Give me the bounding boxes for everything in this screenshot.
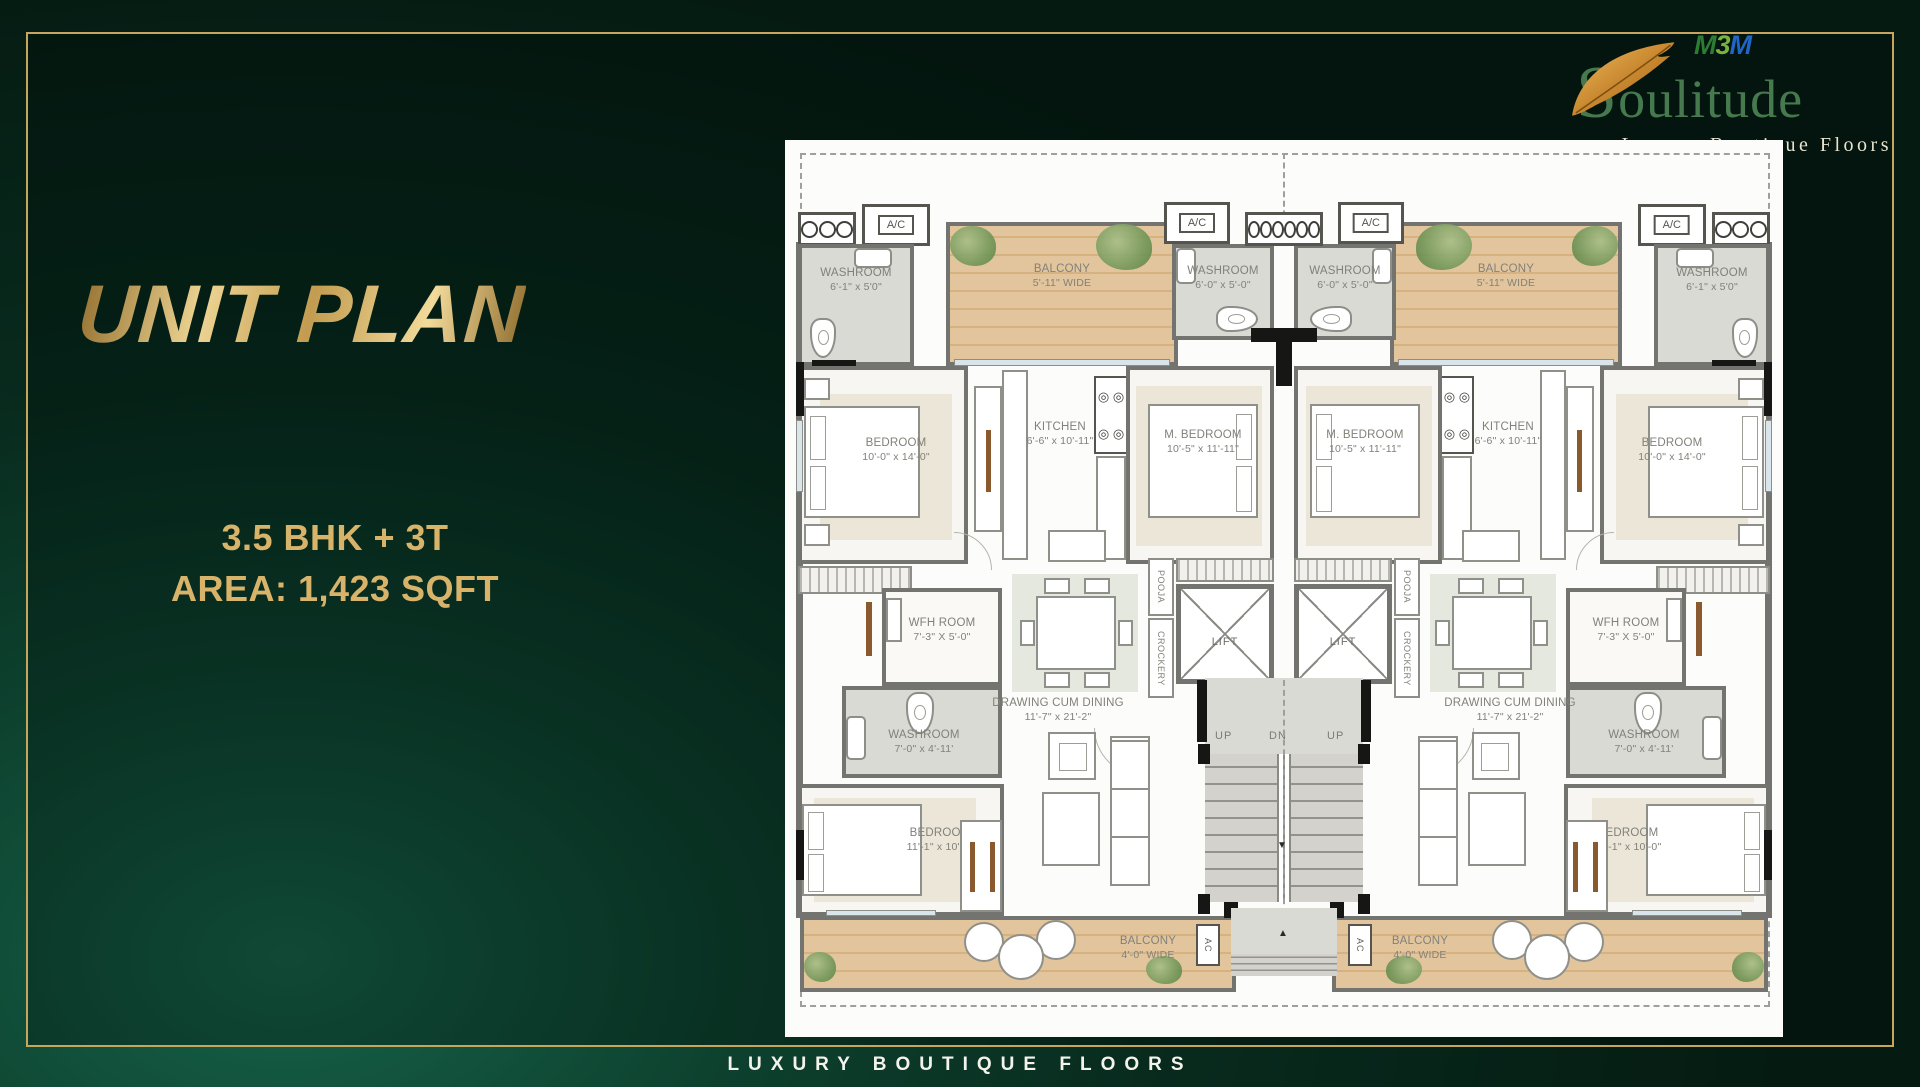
ac-unit-small: AC	[1348, 924, 1372, 966]
pillow	[808, 812, 824, 850]
washroom-corner-label: WASHROOM6'-1" x 5'0"	[1658, 266, 1766, 294]
wardrobe	[960, 820, 1002, 912]
burner: ◎	[1444, 389, 1455, 405]
pillow	[1236, 466, 1252, 512]
room-name: M. BEDROOM	[1142, 428, 1264, 443]
pipe-circle	[1308, 221, 1320, 238]
balcony-top-label: BALCONY5'-11" WIDE	[1430, 262, 1582, 290]
room-dims: 4'-0" WIDE	[1358, 949, 1482, 962]
kitchen-counter	[1540, 370, 1566, 560]
kitchen-label: KITCHEN6'-6" x 10'-11"	[1450, 420, 1566, 448]
balcony-table	[998, 934, 1044, 980]
balcony-chair	[1564, 922, 1604, 962]
armchair	[1472, 732, 1520, 780]
room-dims: 10'-0" x 14'-0"	[1612, 451, 1732, 464]
pillow	[1744, 812, 1760, 850]
room-dims: 5'-11" WIDE	[1430, 277, 1582, 290]
pipe-circle	[836, 221, 853, 238]
dining-chair	[1435, 620, 1450, 646]
cushion	[1481, 743, 1509, 771]
lift-shaft: LIFT	[1294, 584, 1392, 684]
dining-chair	[1458, 578, 1484, 594]
crockery-label: CROCKERY	[1394, 618, 1420, 698]
cushion	[1059, 743, 1087, 771]
room-name: KITCHEN	[1002, 420, 1118, 435]
wardrobe-handle	[1593, 842, 1598, 892]
unit-config: 3.5 BHK + 3T	[80, 512, 590, 563]
pillow	[810, 466, 826, 510]
side-table	[1738, 524, 1764, 546]
ac-label: A/C	[1179, 213, 1215, 233]
coffee-table	[1042, 792, 1100, 866]
room-dims: 5'-11" WIDE	[986, 277, 1138, 290]
room-name: BALCONY	[1358, 934, 1482, 949]
stair-flight	[1291, 754, 1363, 902]
room-name: WASHROOM	[1174, 264, 1272, 279]
unit-summary: 3.5 BHK + 3T AREA: 1,423 SQFT	[80, 512, 590, 614]
party-wall	[1276, 340, 1292, 386]
page-title: UNIT PLAN	[75, 268, 528, 362]
ac-unit: A/C	[1338, 202, 1404, 244]
window	[796, 420, 803, 492]
plant	[950, 226, 996, 266]
sink	[854, 248, 892, 268]
wardrobe-handle	[990, 842, 995, 892]
room-dims: 10'-5" x 11'-11"	[1304, 443, 1426, 456]
room-dims: 10'-5" x 11'-11"	[1142, 443, 1264, 456]
wardrobe	[1566, 386, 1594, 532]
burner: ◎	[1113, 389, 1124, 405]
room-dims: 6'-6" x 10'-11"	[1002, 435, 1118, 448]
wfh-room-label: WFH ROOM7'-3" X 5'-0"	[888, 616, 996, 644]
ac-label: AC	[1203, 938, 1213, 953]
wardrobe-handle	[1577, 430, 1582, 492]
m-bedroom-label: M. BEDROOM10'-5" x 11'-11"	[1142, 428, 1264, 456]
service-shaft	[1712, 212, 1770, 246]
ac-label: A/C	[878, 215, 914, 235]
pooja-label: POOJA	[1394, 558, 1420, 616]
room-name: BALCONY	[1086, 934, 1210, 949]
unit-area: AREA: 1,423 SQFT	[80, 563, 590, 614]
stairs-up-label: UP	[1215, 730, 1232, 742]
wfh-room-label: WFH ROOM7'-3" X 5'-0"	[1572, 616, 1680, 644]
dining-chair	[1020, 620, 1035, 646]
side-table	[1738, 378, 1764, 400]
burner: ◎	[1098, 389, 1109, 405]
side-table	[804, 524, 830, 546]
room-name: DRAWING CUM DINING	[988, 696, 1128, 711]
armchair	[1048, 732, 1096, 780]
bed	[1310, 404, 1420, 518]
dining-chair	[1084, 578, 1110, 594]
stair-wall	[1361, 680, 1371, 742]
wardrobe-handle	[1573, 842, 1578, 892]
bed	[1148, 404, 1258, 518]
room-dims: 6'-0" x 5'-0"	[1296, 279, 1394, 292]
drawing-dining-label: DRAWING CUM DINING11'-7" x 21'-2"	[1440, 696, 1580, 724]
room-name: WASHROOM	[1296, 264, 1394, 279]
window	[1765, 420, 1772, 492]
room-dims: 7'-3" X 5'-0"	[888, 631, 996, 644]
wall-column	[796, 830, 804, 880]
dining-chair	[1044, 578, 1070, 594]
room-name: BALCONY	[1430, 262, 1582, 277]
pipe-circle	[1284, 221, 1296, 238]
pipe-circle	[801, 221, 818, 238]
dining-chair	[1044, 672, 1070, 688]
room-name: DRAWING CUM DINING	[1440, 696, 1580, 711]
dining-chair	[1533, 620, 1548, 646]
m3m-mark: M3M	[1694, 30, 1751, 61]
room-name: M. BEDROOM	[1304, 428, 1426, 443]
pipe-circle	[1272, 221, 1284, 238]
room-dims: 6'-0" x 5'-0"	[1174, 279, 1272, 292]
room-name: WFH ROOM	[888, 616, 996, 631]
ac-unit: A/C	[1164, 202, 1230, 244]
m3m-letter: M	[1694, 30, 1716, 60]
up-arrow-icon: ▲	[1278, 928, 1288, 939]
ac-label: A/C	[1654, 215, 1690, 235]
pipe-circle	[1296, 221, 1308, 238]
dining-chair	[1084, 672, 1110, 688]
m-bedroom-label: M. BEDROOM10'-5" x 11'-11"	[1304, 428, 1426, 456]
service-shaft	[798, 212, 856, 246]
washroom-mid-label: WASHROOM7'-0" x 4'-11'	[1572, 728, 1716, 756]
down-arrow-icon: ▼	[1277, 840, 1287, 851]
drawing-dining-label: DRAWING CUM DINING11'-7" x 21'-2"	[988, 696, 1128, 724]
balcony-top-label: BALCONY5'-11" WIDE	[986, 262, 1138, 290]
pillow	[1744, 854, 1760, 892]
wardrobe-hatch	[1294, 558, 1392, 582]
pillow	[1742, 466, 1758, 510]
newel-post	[1358, 894, 1370, 914]
center-line-dashed	[1283, 680, 1285, 914]
wall-column	[1764, 362, 1772, 416]
sofa	[1418, 736, 1458, 886]
ac-label: A/C	[1353, 213, 1389, 233]
door-leaf	[1696, 602, 1702, 656]
ac-unit: A/C	[1638, 204, 1706, 246]
m3m-digit: 3	[1716, 30, 1730, 60]
room-name: WASHROOM	[852, 728, 996, 743]
bedroom-top-label: BEDROOM10'-0" x 14'-0"	[1612, 436, 1732, 464]
coffee-table	[1468, 792, 1526, 866]
pipe-circle	[1733, 221, 1750, 238]
newel-post	[1358, 744, 1370, 764]
pipe-circle	[1715, 221, 1732, 238]
ac-unit-small: AC	[1196, 924, 1220, 966]
wall-column	[796, 362, 804, 416]
ac-label: AC	[1355, 938, 1365, 953]
room-dims: 11'-7" x 21'-2"	[1440, 711, 1580, 724]
bedroom-top-label: BEDROOM10'-0" x 14'-0"	[836, 436, 956, 464]
plant	[804, 952, 836, 982]
lift-label: LIFT	[1299, 636, 1387, 648]
wall-column	[1764, 830, 1772, 880]
door-leaf	[866, 602, 872, 656]
room-name: WASHROOM	[1572, 728, 1716, 743]
room-dims: 7'-0" x 4'-11'	[852, 743, 996, 756]
pillow	[808, 854, 824, 892]
kitchen-island	[1048, 530, 1106, 562]
room-dims: 6'-1" x 5'0"	[802, 281, 910, 294]
room-name: WASHROOM	[802, 266, 910, 281]
lift-label: LIFT	[1181, 636, 1269, 648]
room-dims: 6'-1" x 5'0"	[1658, 281, 1766, 294]
room-dims: 7'-0" x 4'-11'	[1572, 743, 1716, 756]
sink	[1676, 248, 1714, 268]
service-shaft-center	[1245, 212, 1323, 246]
pillow	[810, 416, 826, 460]
room-name: BEDROOM	[1612, 436, 1732, 451]
newel-post	[1198, 744, 1210, 764]
washroom-center-label: WASHROOM6'-0" x 5'-0"	[1296, 264, 1394, 292]
pipe-circle	[1260, 221, 1272, 238]
stair-wall	[1197, 680, 1207, 742]
room-name: WFH ROOM	[1572, 616, 1680, 631]
balcony-table	[1524, 934, 1570, 980]
balcony-bottom-label: BALCONY4'-0" WIDE	[1086, 934, 1210, 962]
footer-tagline: LUXURY BOUTIQUE FLOORS	[0, 1054, 1920, 1076]
entry-steps	[1231, 954, 1337, 976]
side-table	[804, 378, 830, 400]
room-name: BEDROOM	[836, 436, 956, 451]
pipe-circle	[1750, 221, 1767, 238]
lift-shaft: LIFT	[1176, 584, 1274, 684]
room-dims: 4'-0" WIDE	[1086, 949, 1210, 962]
dining-chair	[1118, 620, 1133, 646]
newel-post	[1198, 894, 1210, 914]
pipe-circle	[819, 221, 836, 238]
burner: ◎	[1459, 389, 1470, 405]
kitchen-counter	[1002, 370, 1028, 560]
room-dims: 10'-0" x 14'-0"	[836, 451, 956, 464]
pillow	[1316, 466, 1332, 512]
kitchen-label: KITCHEN6'-6" x 10'-11"	[1002, 420, 1118, 448]
wardrobe-hatch	[1176, 558, 1274, 582]
balcony-bottom-label: BALCONY4'-0" WIDE	[1358, 934, 1482, 962]
dining-table	[1036, 596, 1116, 670]
room-dims: 6'-6" x 10'-11"	[1450, 435, 1566, 448]
stair-flight	[1205, 754, 1277, 902]
dining-chair	[1498, 672, 1524, 688]
sliding-window	[1398, 359, 1614, 366]
wardrobe-handle	[970, 842, 975, 892]
sofa	[1110, 736, 1150, 886]
washroom-corner-label: WASHROOM6'-1" x 5'0"	[802, 266, 910, 294]
dining-chair	[1458, 672, 1484, 688]
pipe-circle	[1248, 221, 1260, 238]
room-dims: 11'-7" x 21'-2"	[988, 711, 1128, 724]
floor-plan: A/C WASHROOM6'-1" x 5'0" BALCONY5'-11" W…	[785, 140, 1783, 1037]
pillow	[1742, 416, 1758, 460]
ac-unit: A/C	[862, 204, 930, 246]
wardrobe	[1566, 820, 1608, 912]
room-name: BALCONY	[986, 262, 1138, 277]
wardrobe-handle	[986, 430, 991, 492]
wardrobe	[974, 386, 1002, 532]
sliding-window	[954, 359, 1170, 366]
washroom-center-label: WASHROOM6'-0" x 5'-0"	[1174, 264, 1272, 292]
brochure-page: M3M Soulitude Luxury Boutique Floors UNI…	[0, 0, 1920, 1087]
room-name: KITCHEN	[1450, 420, 1566, 435]
crockery-label: CROCKERY	[1148, 618, 1174, 698]
pooja-label: POOJA	[1148, 558, 1174, 616]
kitchen-island	[1462, 530, 1520, 562]
m3m-letter: M	[1730, 30, 1752, 60]
dining-table	[1452, 596, 1532, 670]
washroom-mid-label: WASHROOM7'-0" x 4'-11'	[852, 728, 996, 756]
dining-chair	[1498, 578, 1524, 594]
room-name: WASHROOM	[1658, 266, 1766, 281]
stairs-up-label: UP	[1327, 730, 1344, 742]
room-dims: 7'-3" X 5'-0"	[1572, 631, 1680, 644]
